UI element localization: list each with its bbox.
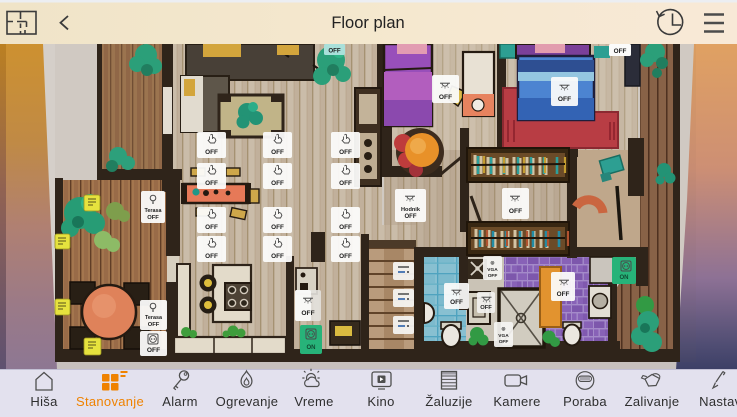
- svg-text:OFF: OFF: [301, 310, 314, 317]
- svg-text:OFF: OFF: [339, 180, 352, 187]
- svg-text:Stanovanje: Stanovanje: [76, 394, 144, 409]
- svg-text:Floor plan: Floor plan: [331, 14, 404, 32]
- svg-text:OFF: OFF: [614, 48, 627, 55]
- svg-text:Kino: Kino: [367, 394, 394, 409]
- svg-text:OFF: OFF: [499, 339, 509, 345]
- svg-text:OFF: OFF: [405, 214, 417, 220]
- svg-text:Hodnik: Hodnik: [401, 207, 421, 213]
- svg-text:OFF: OFF: [558, 96, 571, 103]
- svg-text:Terasa: Terasa: [145, 315, 163, 321]
- svg-text:Žaluzije: Žaluzije: [425, 394, 472, 409]
- svg-text:OFF: OFF: [450, 299, 463, 306]
- svg-text:ON: ON: [307, 345, 316, 351]
- svg-text:OFF: OFF: [147, 347, 160, 354]
- svg-text:OFF: OFF: [328, 48, 341, 55]
- svg-text:OFF: OFF: [339, 149, 352, 156]
- svg-text:OFF: OFF: [205, 253, 218, 260]
- svg-text:Nastavitve: Nastavitve: [699, 394, 737, 409]
- svg-text:OFF: OFF: [439, 94, 452, 101]
- svg-text:OFF: OFF: [339, 253, 352, 260]
- svg-text:OFF: OFF: [271, 253, 284, 260]
- svg-text:Poraba: Poraba: [563, 394, 607, 409]
- svg-text:Vreme: Vreme: [294, 394, 333, 409]
- svg-text:OFF: OFF: [488, 273, 498, 279]
- svg-text:VGA: VGA: [487, 267, 498, 273]
- svg-text:OFF: OFF: [271, 224, 284, 231]
- svg-text:ON: ON: [620, 275, 629, 281]
- svg-text:OFF: OFF: [271, 149, 284, 156]
- svg-text:OFF: OFF: [205, 149, 218, 156]
- svg-text:OFF: OFF: [509, 208, 522, 215]
- svg-text:OFF: OFF: [205, 180, 218, 187]
- svg-text:Terasa: Terasa: [145, 208, 163, 214]
- svg-text:VGA: VGA: [498, 333, 509, 339]
- svg-text:OFF: OFF: [271, 180, 284, 187]
- svg-text:Ogrevanje: Ogrevanje: [216, 394, 279, 409]
- svg-text:OFF: OFF: [339, 224, 352, 231]
- svg-text:Zalivanje: Zalivanje: [625, 394, 680, 409]
- svg-text:Alarm: Alarm: [162, 394, 197, 409]
- svg-text:OFF: OFF: [147, 215, 159, 221]
- svg-text:Kamere: Kamere: [493, 394, 540, 409]
- svg-text:OFF: OFF: [205, 224, 218, 231]
- svg-text:OFF: OFF: [557, 291, 570, 298]
- svg-text:Hiša: Hiša: [30, 394, 58, 409]
- svg-text:OFF: OFF: [480, 305, 492, 311]
- svg-text:OFF: OFF: [148, 322, 160, 328]
